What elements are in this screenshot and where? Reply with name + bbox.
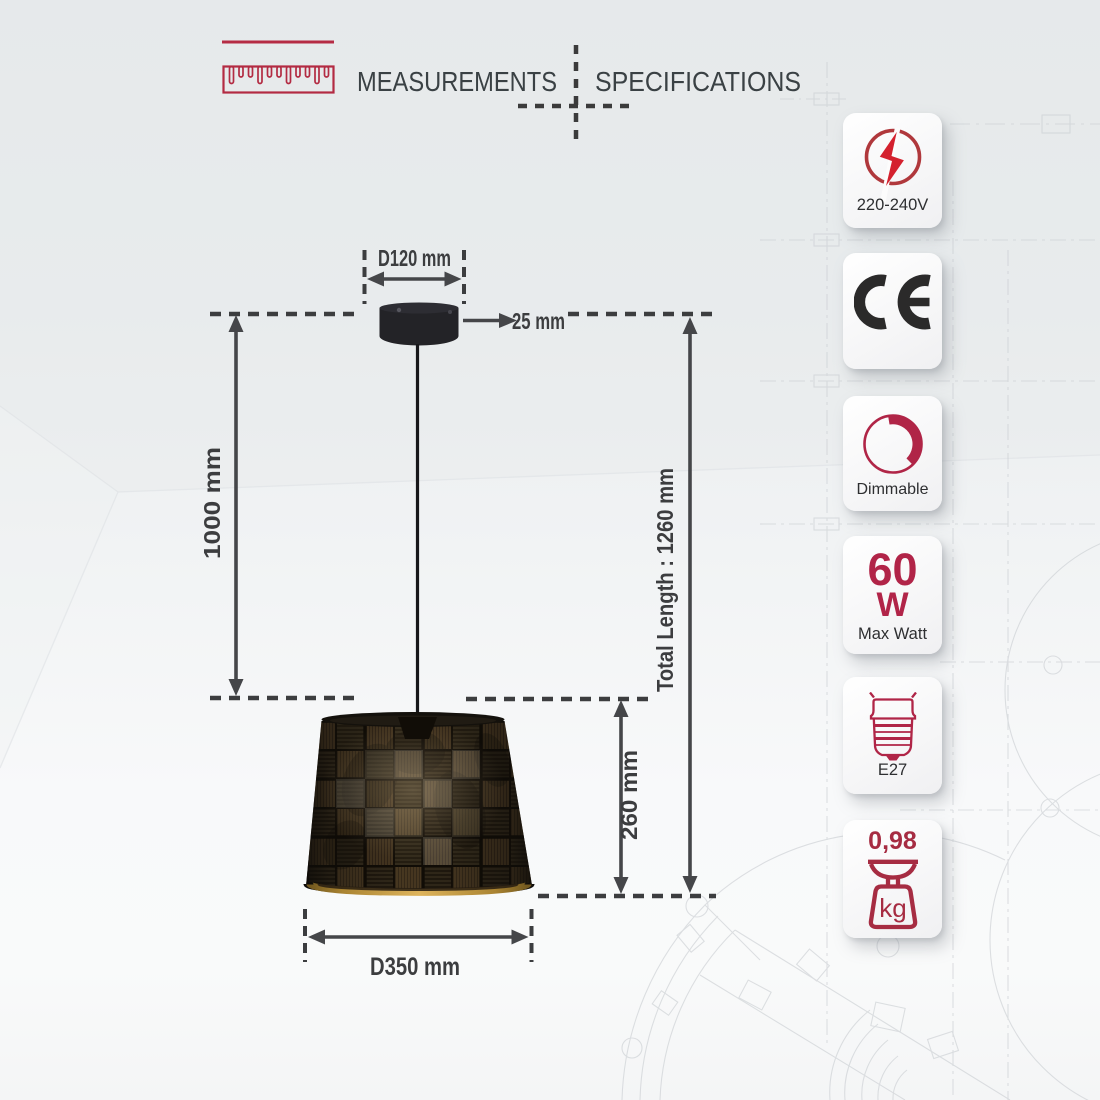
svg-text:1000 mm: 1000 mm <box>199 447 225 559</box>
svg-text:D120 mm: D120 mm <box>378 245 451 271</box>
svg-text:kg: kg <box>879 893 906 923</box>
svg-text:MEASUREMENTS: MEASUREMENTS <box>357 66 557 97</box>
svg-text:D350 mm: D350 mm <box>370 953 460 981</box>
svg-text:25 mm: 25 mm <box>512 308 565 334</box>
svg-text:Total Length : 1260 mm: Total Length : 1260 mm <box>652 468 678 692</box>
svg-text:SPECIFICATIONS: SPECIFICATIONS <box>595 66 801 97</box>
svg-text:260 mm: 260 mm <box>616 750 642 840</box>
